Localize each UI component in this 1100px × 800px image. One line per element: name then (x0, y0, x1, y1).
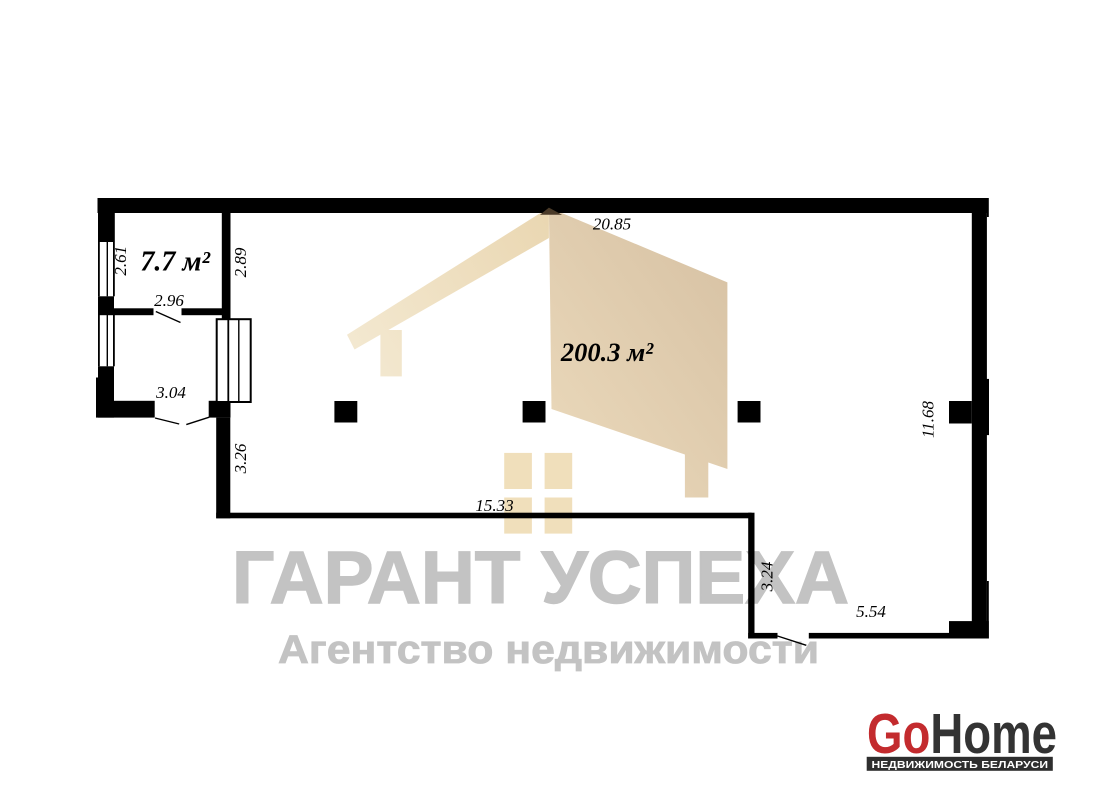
svg-text:Агентство недвижимости: Агентство недвижимости (278, 628, 819, 672)
svg-text:3.26: 3.26 (231, 443, 250, 474)
svg-text:2.89: 2.89 (231, 247, 250, 277)
svg-text:НЕДВИЖИМОСТЬ БЕЛАРУСИ: НЕДВИЖИМОСТЬ БЕЛАРУСИ (872, 759, 1049, 771)
svg-text:3.24: 3.24 (758, 561, 777, 592)
svg-text:200.3 м²: 200.3 м² (560, 337, 654, 367)
svg-text:5.54: 5.54 (856, 602, 886, 621)
svg-text:2.61: 2.61 (111, 246, 130, 276)
svg-text:11.68: 11.68 (919, 401, 938, 438)
svg-text:GoHome: GoHome (867, 702, 1057, 766)
svg-text:7.7 м²: 7.7 м² (140, 247, 210, 278)
svg-text:ГАРАНТ УСПЕХА: ГАРАНТ УСПЕХА (232, 536, 849, 619)
svg-text:2.96: 2.96 (154, 291, 184, 310)
svg-text:3.04: 3.04 (155, 383, 186, 402)
